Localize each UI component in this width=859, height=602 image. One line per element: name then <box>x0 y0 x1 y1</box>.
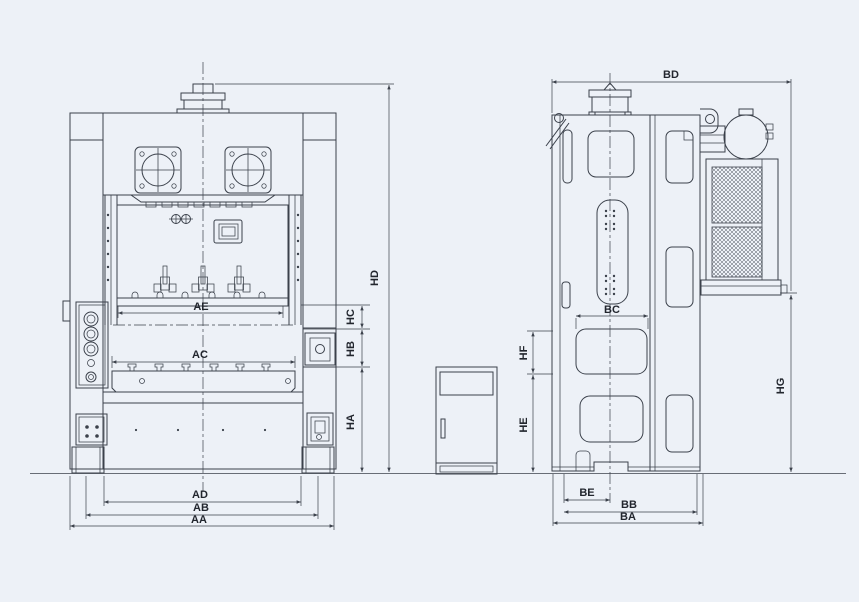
flange-left <box>135 147 181 193</box>
dim-label-bc: BC <box>604 304 620 316</box>
slide-ram <box>117 205 288 306</box>
flange-right <box>225 147 271 193</box>
dim-label-aa: AA <box>191 514 207 526</box>
dim-label-hc: HC <box>345 309 357 325</box>
dim-label-bb: BB <box>621 499 637 511</box>
dim-label-ae: AE <box>193 301 208 313</box>
right-column-boxes <box>303 328 336 445</box>
press-drawing-svg: AE AC AD AB AA HC HB HA HD BD BC BE BB B… <box>0 0 859 602</box>
side-openings <box>562 130 693 471</box>
dim-label-hf: HF <box>518 345 530 360</box>
control-cabinet <box>436 367 497 474</box>
dim-label-hd: HD <box>369 270 381 286</box>
lifting-lug-left <box>546 114 569 150</box>
dim-label-hb: HB <box>345 341 357 357</box>
dim-label-ab: AB <box>193 502 209 514</box>
dim-label-he: HE <box>518 417 530 432</box>
motor <box>700 109 773 159</box>
dim-label-hg: HG <box>775 378 787 395</box>
side-view <box>546 73 787 503</box>
belt-guard <box>701 159 787 295</box>
dim-label-ha: HA <box>345 414 357 430</box>
dim-label-bd: BD <box>663 69 679 81</box>
dim-label-ba: BA <box>620 511 636 523</box>
side-body <box>552 115 700 471</box>
lifting-lug-right <box>700 109 718 133</box>
dim-label-be: BE <box>579 487 594 499</box>
technical-drawing-canvas: AE AC AD AB AA HC HB HA HD BD BC BE BB B… <box>0 0 859 602</box>
dim-label-ad: AD <box>192 489 208 501</box>
socket-box <box>76 414 107 445</box>
front-dimensions <box>70 84 394 530</box>
left-side-tab <box>63 301 70 321</box>
side-dimensions <box>527 79 797 526</box>
dim-label-ac: AC <box>192 349 208 361</box>
die-clamps <box>154 266 250 292</box>
front-view <box>63 62 336 492</box>
